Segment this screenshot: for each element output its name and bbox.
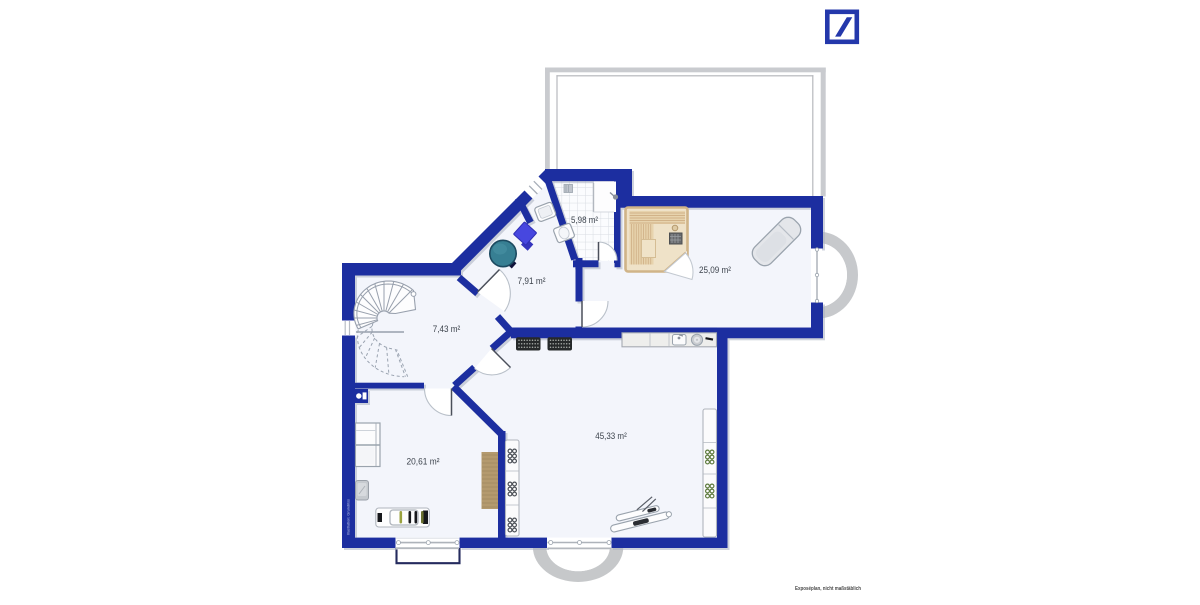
svg-text:45,33 m²: 45,33 m² [595, 431, 627, 441]
svg-text:7,43 m²: 7,43 m² [433, 324, 461, 334]
svg-text:20,61 m²: 20,61 m² [407, 457, 440, 467]
svg-text:Illustration: Grundriss: Illustration: Grundriss [347, 499, 351, 535]
svg-text:5,98 m²: 5,98 m² [571, 215, 598, 225]
svg-text:7,91 m²: 7,91 m² [518, 276, 546, 286]
svg-text:Exposéplan, nicht maßstäblich: Exposéplan, nicht maßstäblich [795, 586, 861, 592]
svg-text:25,09 m²: 25,09 m² [699, 265, 731, 275]
